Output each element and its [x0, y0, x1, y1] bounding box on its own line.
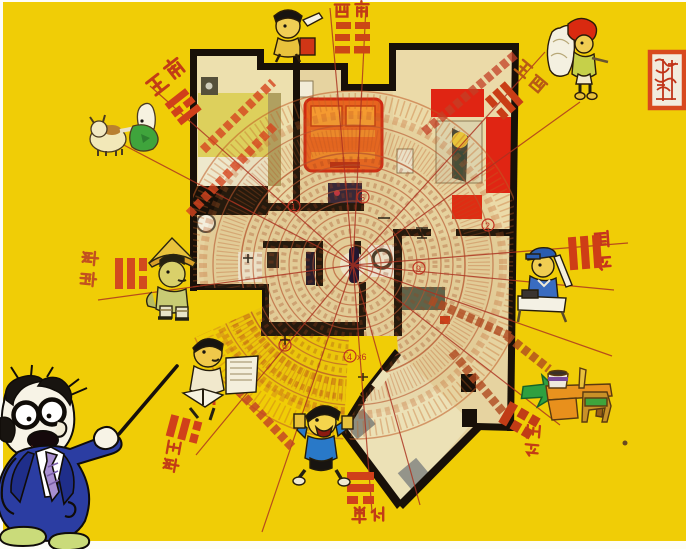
svg-text:x6: x6 [357, 352, 367, 362]
svg-text:4: 4 [347, 352, 352, 362]
svg-text:9: 9 [416, 264, 421, 274]
svg-text:2: 2 [485, 221, 490, 231]
svg-text:5: 5 [360, 193, 365, 203]
